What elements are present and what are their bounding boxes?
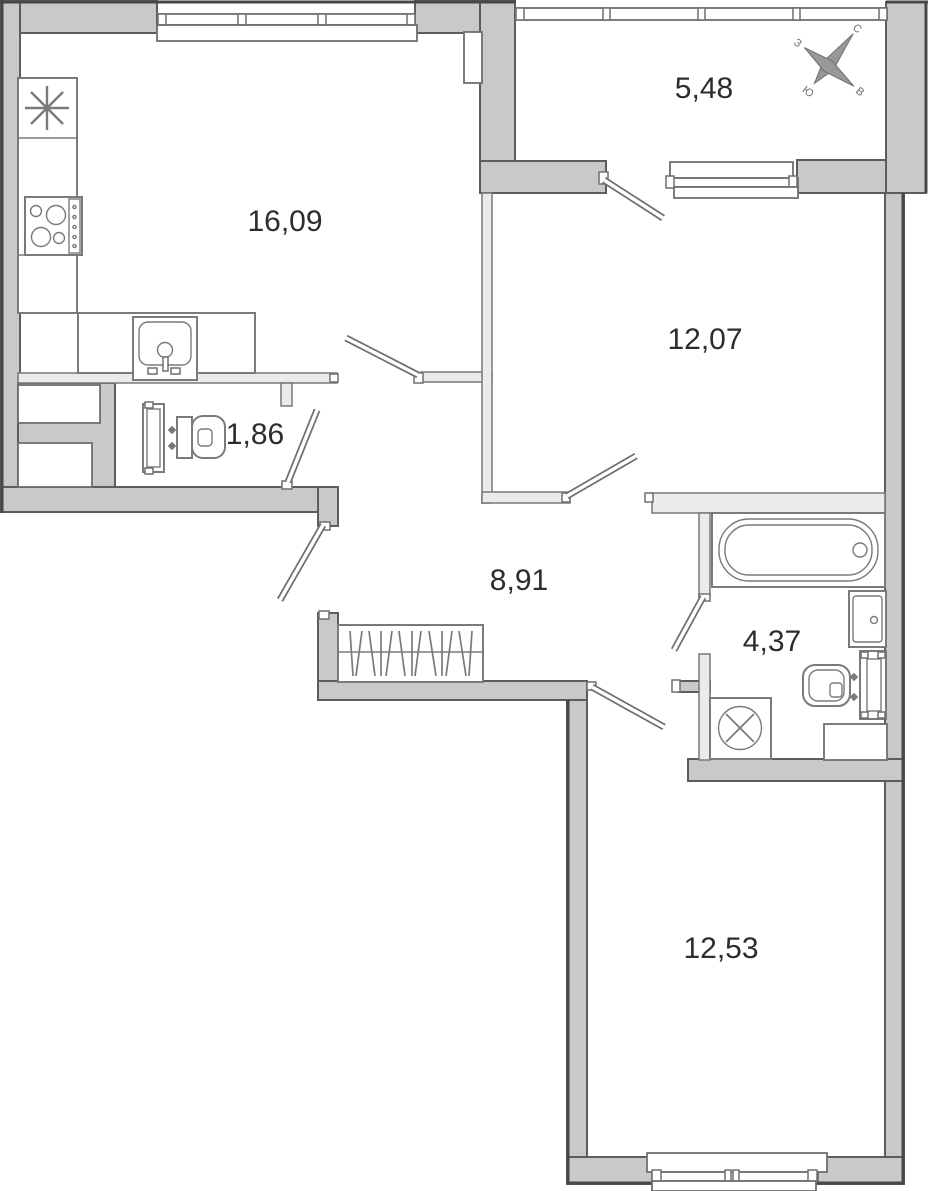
- shaft-icon: [464, 32, 482, 83]
- area-label-hallway: 8,91: [490, 564, 548, 597]
- wall-hallway-bottom: [318, 681, 587, 700]
- area-label-wc: 1,86: [226, 418, 284, 451]
- window-mullion: [698, 8, 705, 20]
- window-sill: [670, 162, 793, 178]
- window-end-cap: [158, 14, 166, 25]
- loggia-door-leaf: [604, 180, 663, 218]
- window-frame: [158, 14, 415, 25]
- bathroom-door-leaf: [674, 597, 703, 650]
- towel-rail-icon: [860, 651, 886, 719]
- kitchen-door-leaf: [346, 338, 418, 375]
- window-end-cap: [879, 8, 887, 20]
- valve-diamond-icon: [850, 693, 858, 701]
- partition-room1-bottom: [482, 492, 570, 503]
- window-frame: [667, 178, 798, 187]
- wall-bathroom-bottom: [688, 759, 904, 781]
- valve-diamond-icon: [168, 442, 176, 450]
- window-end-cap: [666, 176, 674, 188]
- compass-north-label: С: [850, 22, 864, 36]
- window-mullion: [238, 14, 246, 25]
- area-label-room1: 12,07: [667, 323, 742, 356]
- wc-fixtures: [143, 402, 225, 474]
- wall-loggia-bottom-right: [797, 160, 887, 193]
- wall-entry-upper: [318, 487, 338, 526]
- wall-bedroom-left: [567, 700, 587, 1158]
- window-mullion: [793, 8, 800, 20]
- washing-machine-icon: [710, 698, 771, 759]
- window-exterior-ledge: [652, 1181, 816, 1191]
- valve-diamond-icon: [168, 426, 176, 434]
- wall-hallway-top: [1, 487, 338, 512]
- ventilation-asterisk-icon: [25, 86, 69, 130]
- area-label-kitchen: 16,09: [247, 205, 322, 238]
- door-cap: [319, 611, 329, 619]
- loggia-glazing: [516, 8, 887, 20]
- wall-right: [885, 193, 904, 1157]
- partition-wc-right-stub: [281, 383, 292, 406]
- window-mullion: [318, 14, 326, 25]
- shaft-icon: [18, 443, 92, 487]
- shaft-icon: [18, 385, 100, 423]
- window-end-cap: [516, 8, 524, 20]
- wall-loggia-bottom-left: [480, 161, 606, 193]
- compass-south-label: Ю: [800, 84, 816, 100]
- compass-west-label: З: [791, 37, 804, 51]
- kitchen-window: [157, 14, 417, 41]
- door-caps: [282, 172, 710, 692]
- riser-radiator-icon: [143, 402, 164, 474]
- valve-diamond-icon: [850, 673, 858, 681]
- area-label-bathroom: 4,37: [743, 625, 801, 658]
- wall-loggia-right: [886, 2, 926, 193]
- area-label-loggia: 5,48: [675, 72, 733, 105]
- partition-bathroom-top: [652, 493, 885, 513]
- compass-east-label: В: [853, 85, 866, 99]
- loggia-room-window: [666, 162, 798, 198]
- window-end-cap: [407, 14, 415, 25]
- window-sill: [647, 1153, 827, 1172]
- kitchen-sink-icon: [133, 317, 197, 380]
- bedroom-door-leaf: [592, 687, 664, 727]
- window-sill: [157, 25, 417, 41]
- wardrobe-icon: [338, 625, 483, 682]
- floor-plan-svg: С Ю З В 16,09 5,48 12,07 1,86 8,91 4,37 …: [0, 0, 928, 1191]
- washbasin-icon: [849, 591, 886, 647]
- area-label-room2: 12,53: [683, 932, 758, 965]
- partition-bathroom-left-lower: [699, 654, 710, 760]
- cooktop-icon: [25, 197, 82, 255]
- wall-entry-lower: [318, 613, 338, 683]
- window-sill: [674, 187, 798, 198]
- bathtub-icon: [712, 513, 885, 587]
- bathroom-niche: [824, 724, 887, 760]
- wall-top-left: [1, 1, 157, 33]
- partition-bathroom-left-upper: [699, 513, 710, 596]
- toilet-icon: [177, 416, 225, 458]
- room1-door-leaf: [567, 456, 636, 496]
- door-cap: [330, 374, 338, 382]
- window-mullion: [603, 8, 610, 20]
- wall-hung-toilet-icon: [803, 665, 850, 706]
- entrance-door-leaf: [280, 525, 323, 600]
- door-cap: [672, 680, 680, 692]
- partition-room1-left: [482, 193, 492, 503]
- kitchen-fixtures: [18, 78, 255, 380]
- wc-door-leaf: [288, 410, 317, 482]
- floor-plan: С Ю З В 16,09 5,48 12,07 1,86 8,91 4,37 …: [0, 0, 928, 1191]
- door-cap: [645, 493, 653, 502]
- bedroom-window: [647, 1153, 827, 1191]
